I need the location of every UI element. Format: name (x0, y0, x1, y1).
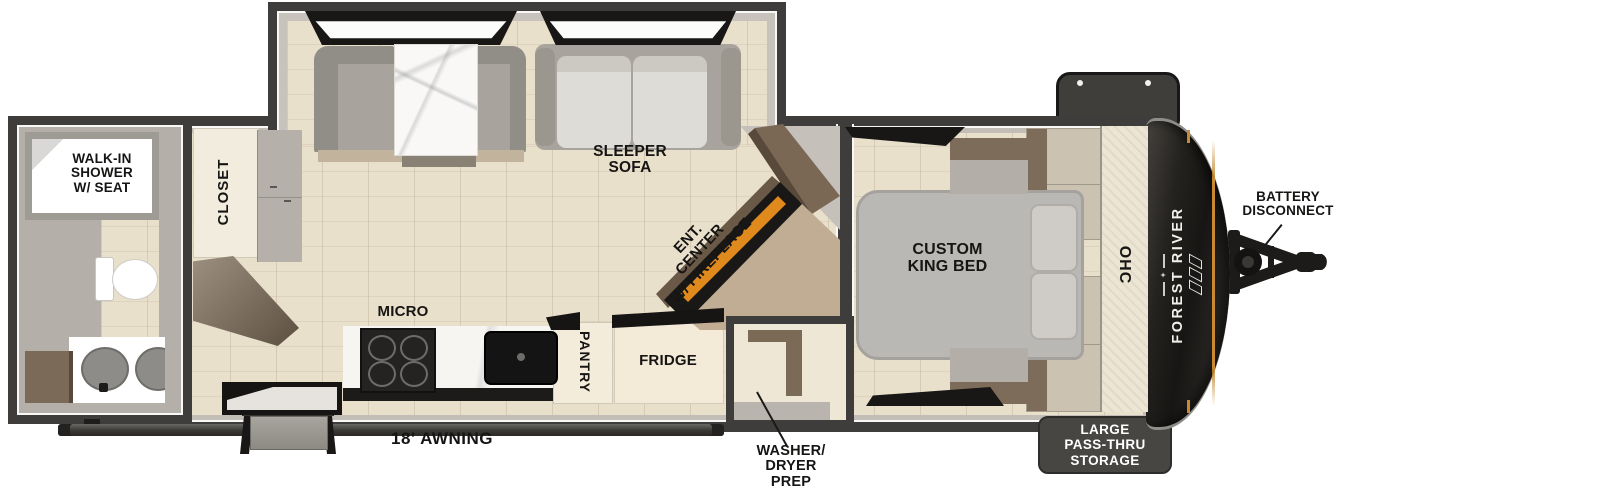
emblem-dash (1163, 254, 1165, 268)
step-platform (250, 416, 328, 450)
tongue-jack-center (1242, 256, 1254, 268)
stove-cooktop (360, 328, 436, 393)
washer-dryer-prep-closet (726, 316, 854, 428)
label-micro: MICRO (368, 304, 438, 320)
burner (368, 361, 396, 387)
dinette-table (394, 44, 478, 156)
label-pantry: PANTRY (576, 324, 592, 400)
toilet-bowl (112, 259, 158, 300)
vanity-sink (135, 347, 165, 391)
cap-accent-tick (1187, 130, 1190, 143)
label-fridge: FRIDGE (620, 353, 716, 369)
brand-emblem: ✦ (1160, 254, 1168, 297)
door-swing (227, 387, 273, 400)
burner (368, 335, 396, 361)
cabinet-handle (284, 200, 291, 202)
jack-post (1268, 246, 1274, 278)
label-ohc: OHC (1114, 233, 1132, 297)
entry-door (222, 382, 342, 415)
kitchen-sink (484, 331, 558, 385)
sofa-cushion (557, 56, 631, 148)
hitch-tongue (1224, 222, 1334, 302)
label-custom-king-bed: CUSTOM KING BED (885, 242, 1010, 276)
nightstand-top (950, 138, 1028, 194)
cabinet-handle (270, 186, 277, 188)
pillow (1030, 272, 1078, 340)
cabinet-bank (257, 130, 302, 262)
screw-dot (1077, 80, 1083, 86)
coupler (1296, 252, 1316, 272)
sofa-armrest-left (535, 48, 555, 146)
faucet (517, 353, 525, 361)
label-closet: CLOSET (216, 137, 234, 247)
cap-accent-tick (1187, 400, 1190, 413)
label-battery-disconnect: BATTERY DISCONNECT (1228, 190, 1348, 219)
label-washer-dryer: WASHER/ DRYER PREP (736, 444, 846, 490)
label-sleeper-sofa: SLEEPER SOFA (580, 144, 680, 177)
emblem-dash (1163, 282, 1165, 296)
brand-name: FOREST RIVER (1170, 206, 1186, 343)
wd-cabinet-top (748, 330, 802, 342)
faucet (99, 383, 108, 392)
bathroom-cabinet (25, 351, 73, 403)
cap-accent-stripe (1212, 140, 1215, 406)
label-awning: 18' AWNING (382, 430, 502, 448)
coupler-ball-pocket (1314, 254, 1327, 270)
burner (400, 361, 428, 387)
floorplan-canvas: SLEEPER SOFA CLOSET MICRO PANTRY FRIDGE (0, 0, 1600, 490)
sofa-cushion (633, 56, 707, 148)
brand-logo: ✦ FOREST RIVER (1162, 170, 1200, 380)
sofa-armrest-right (721, 48, 741, 146)
crest-icon: ✦ (1160, 272, 1168, 279)
screw-dot (1145, 80, 1151, 86)
slash (1189, 280, 1202, 296)
label-walk-in-shower: WALK-IN SHOWER W/ SEAT (42, 152, 162, 195)
dinette-bench-left (314, 46, 394, 152)
wd-floor (734, 402, 830, 420)
burner (400, 335, 428, 361)
dinette-bench-right (476, 46, 526, 152)
label-pass-thru-storage: LARGE PASS-THRU STORAGE (1064, 422, 1145, 469)
pillow (1030, 204, 1078, 272)
brand-slashes-icon (1189, 258, 1202, 293)
vanity-counter (69, 337, 165, 403)
